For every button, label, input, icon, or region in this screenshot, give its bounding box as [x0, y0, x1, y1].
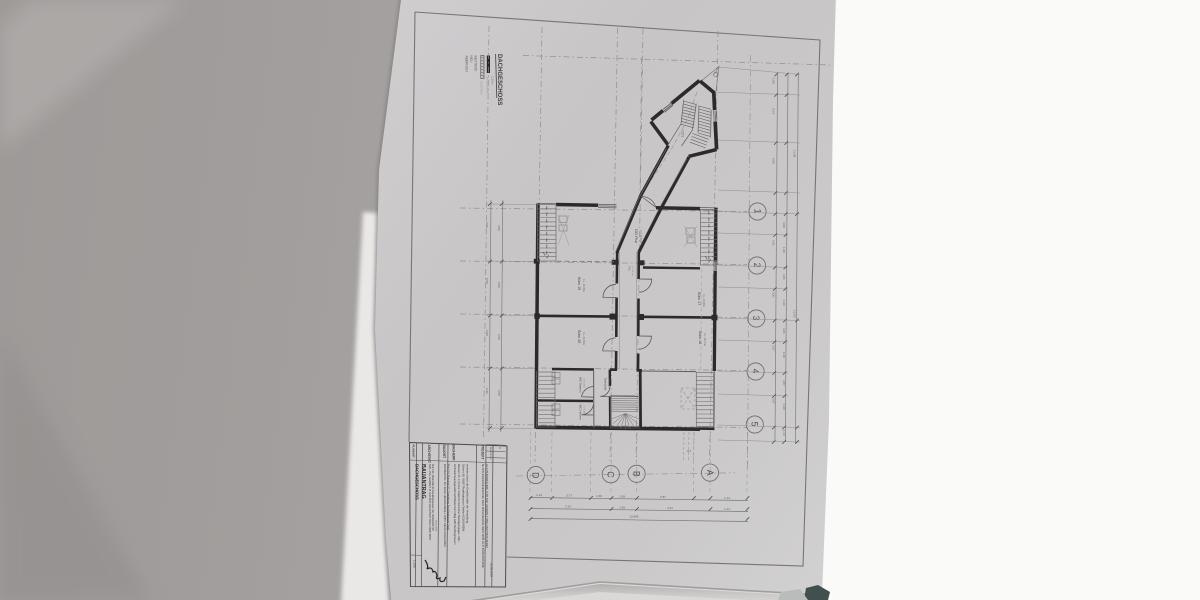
- svg-text:1991: 1991: [681, 130, 685, 137]
- svg-text:WC Damen: WC Damen: [579, 377, 583, 393]
- svg-text:3.80: 3.80: [782, 222, 786, 228]
- svg-text:Flur 124, Flurstück 92, Gemark: Flur 124, Flurstück 92, Gemarkung Reckli…: [446, 464, 450, 530]
- svg-text:2.5 5.06m: 2.5 5.06m: [608, 379, 610, 389]
- svg-text:4.14: 4.14: [772, 108, 776, 114]
- svg-text:Büro 19: Büro 19: [577, 277, 581, 290]
- svg-text:1.99: 1.99: [619, 495, 625, 499]
- svg-text:vertreten durch die Gesellscha: vertreten durch die Gesellschafter der V…: [466, 464, 470, 524]
- svg-text:203: 203: [687, 449, 692, 453]
- svg-text:2: 2: [752, 263, 762, 268]
- svg-text:3.81: 3.81: [772, 240, 776, 246]
- svg-text:ARCHITEKT: ARCHITEKT: [427, 445, 431, 463]
- svg-text:DG Flur: DG Flur: [634, 229, 639, 244]
- svg-text:3.87: 3.87: [772, 398, 776, 404]
- svg-text:Gifhorn 38, 45657 Recklinghaus: Gifhorn 38, 45657 Recklinghausen Telefon…: [461, 464, 465, 532]
- svg-text:1.00: 1.00: [782, 404, 786, 410]
- svg-text:BAUHERR: BAUHERR: [452, 445, 456, 462]
- svg-text:ALS BÜRORÄUME FÜR DIE VERWALTU: ALS BÜRORÄUME FÜR DIE VERWALTUNG DER BRA…: [485, 464, 489, 548]
- svg-text:4.31: 4.31: [667, 506, 673, 510]
- svg-text:11.08: 11.08: [793, 150, 797, 158]
- svg-text:4 + 16.56m: 4 + 16.56m: [582, 332, 586, 345]
- svg-text:NEU: NEU: [469, 56, 473, 64]
- svg-text:Flur: Flur: [628, 266, 632, 271]
- svg-text:PROJEKT: PROJEKT: [481, 445, 485, 460]
- svg-text:4 + 20.36m: 4 + 20.36m: [702, 294, 706, 307]
- svg-text:3.56: 3.56: [497, 390, 501, 396]
- svg-text:WC Herren: WC Herren: [579, 405, 583, 420]
- svg-text:Büro 17: Büro 17: [697, 292, 701, 305]
- svg-text:1.09: 1.09: [772, 78, 776, 84]
- svg-text:13.03: 13.03: [793, 310, 797, 318]
- svg-text:ABBRUCH: ABBRUCH: [465, 56, 469, 73]
- svg-text:Büro 20: Büro 20: [577, 330, 581, 343]
- svg-text:1.00: 1.00: [782, 352, 786, 358]
- svg-text:3: 3: [751, 316, 761, 321]
- svg-text:3.87: 3.87: [782, 380, 786, 386]
- svg-text:4: 4: [751, 369, 761, 374]
- svg-text:3.56: 3.56: [497, 225, 501, 231]
- svg-text:Unterschrift: Unterschrift: [435, 520, 438, 532]
- svg-text:Teeküche: Teeküche: [604, 378, 608, 391]
- svg-text:3.87: 3.87: [772, 345, 776, 351]
- svg-text:3.87: 3.87: [660, 495, 666, 499]
- svg-text:NUTZUNGSÄNDERUNG DES BÜROGEBÄU: NUTZUNGSÄNDERUNG DES BÜROGEBÄUDES NPB AL…: [481, 464, 485, 568]
- svg-text:3.81: 3.81: [772, 292, 776, 298]
- svg-text:2.26: 2.26: [485, 222, 489, 228]
- svg-text:2.4 19.56m: 2.4 19.56m: [639, 230, 643, 243]
- svg-text:2.06: 2.06: [485, 330, 489, 336]
- svg-text:2.56: 2.56: [497, 282, 501, 288]
- svg-text:4 + 16.47m: 4 + 16.47m: [703, 333, 707, 346]
- svg-text:Flur 124, Pbersohk 92 Recklin: Flur 124, Pbersohk 92 Recklinghausen Tel…: [431, 464, 435, 531]
- svg-text:23.09.2002: 23.09.2002: [490, 563, 494, 577]
- svg-text:BAUORT: BAUORT: [442, 445, 446, 459]
- svg-text:13.845: 13.845: [629, 515, 639, 519]
- svg-text:1.99: 1.99: [619, 506, 625, 510]
- svg-text:2.56: 2.56: [497, 334, 501, 340]
- svg-text:1.14: 1.14: [782, 430, 786, 436]
- svg-text:DACHGESCHOSS: DACHGESCHOSS: [415, 464, 420, 500]
- svg-text:3.81: 3.81: [782, 274, 786, 280]
- svg-text:DIPL.-ING. HUBERT M. HILTROP A: DIPL.-ING. HUBERT M. HILTROP ARCHITEKT B…: [428, 464, 432, 541]
- svg-text:1.14: 1.14: [724, 507, 730, 511]
- svg-text:LEICHTBAU: LEICHTBAU: [480, 81, 483, 95]
- svg-text:1.00: 1.00: [782, 247, 786, 253]
- svg-text:2.3 10.1m: 2.3 10.1m: [631, 266, 633, 276]
- svg-text:4 + 16.06m: 4 + 16.06m: [582, 279, 586, 292]
- svg-text:3.14: 3.14: [565, 505, 571, 509]
- svg-text:WASSERSTR. 96 / ECKE HERZOGSWA: WASSERSTR. 96 / ECKE HERZOGSWALL 45657 R…: [443, 464, 447, 547]
- svg-text:2.20m: 2.20m: [491, 76, 495, 85]
- svg-text:1.66: 1.66: [596, 494, 602, 498]
- svg-text:2.26: 2.26: [485, 388, 489, 394]
- svg-text:1.14: 1.14: [724, 496, 730, 500]
- svg-text:2.06: 2.06: [485, 278, 489, 284]
- svg-text:C: C: [606, 471, 616, 478]
- svg-text:1.14: 1.14: [536, 493, 542, 497]
- svg-text:2.6 5.86m: 2.6 5.86m: [583, 378, 585, 388]
- svg-text:PLANART: PLANART: [412, 445, 416, 459]
- svg-text:2.7 5.80m: 2.7 5.80m: [583, 406, 585, 416]
- svg-text:3.77: 3.77: [566, 494, 572, 498]
- svg-text:6.08: 6.08: [772, 158, 776, 164]
- svg-text:Wessel / Dr. Frohnes / Edelman: Wessel / Dr. Frohnes / Edelmannschreiner…: [457, 464, 461, 541]
- svg-text:1.00: 1.00: [782, 300, 786, 306]
- svg-text:3.81: 3.81: [782, 328, 786, 334]
- svg-text:BAUANTRAG: BAUANTRAG: [420, 464, 426, 499]
- svg-text:Büro 18: Büro 18: [698, 331, 702, 344]
- svg-text:ÄNDERUNG: ÄNDERUNG: [489, 447, 492, 460]
- svg-text:BESTAND: BESTAND: [474, 56, 478, 72]
- svg-text:Schlossbrauereigesellschaft We: Schlossbrauereigesellschaft Westerheim N…: [453, 464, 457, 545]
- svg-text:1:100: 1:100: [413, 560, 417, 568]
- svg-text:D: D: [531, 472, 541, 478]
